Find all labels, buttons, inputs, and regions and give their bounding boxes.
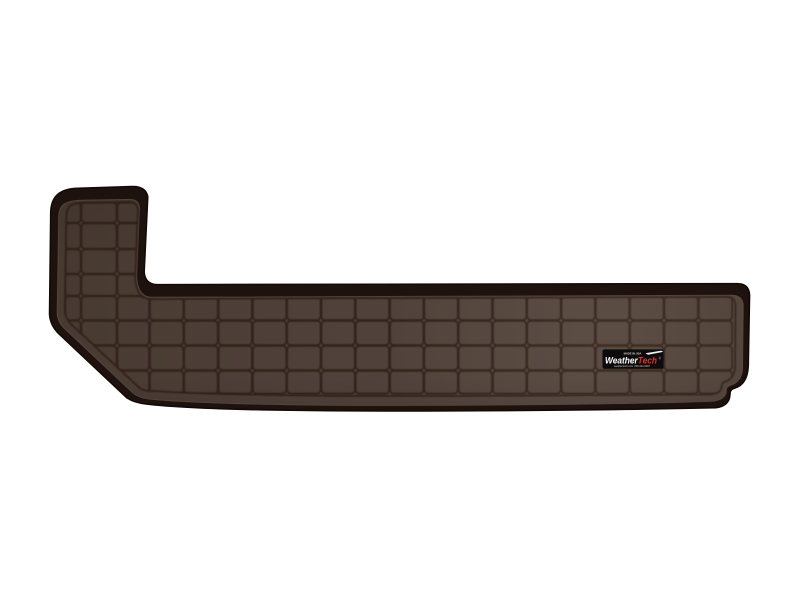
svg-text:WeatherTech: WeatherTech [605, 355, 657, 366]
svg-text:weathertech.com 800-441-6287: weathertech.com 800-441-6287 [614, 365, 651, 368]
